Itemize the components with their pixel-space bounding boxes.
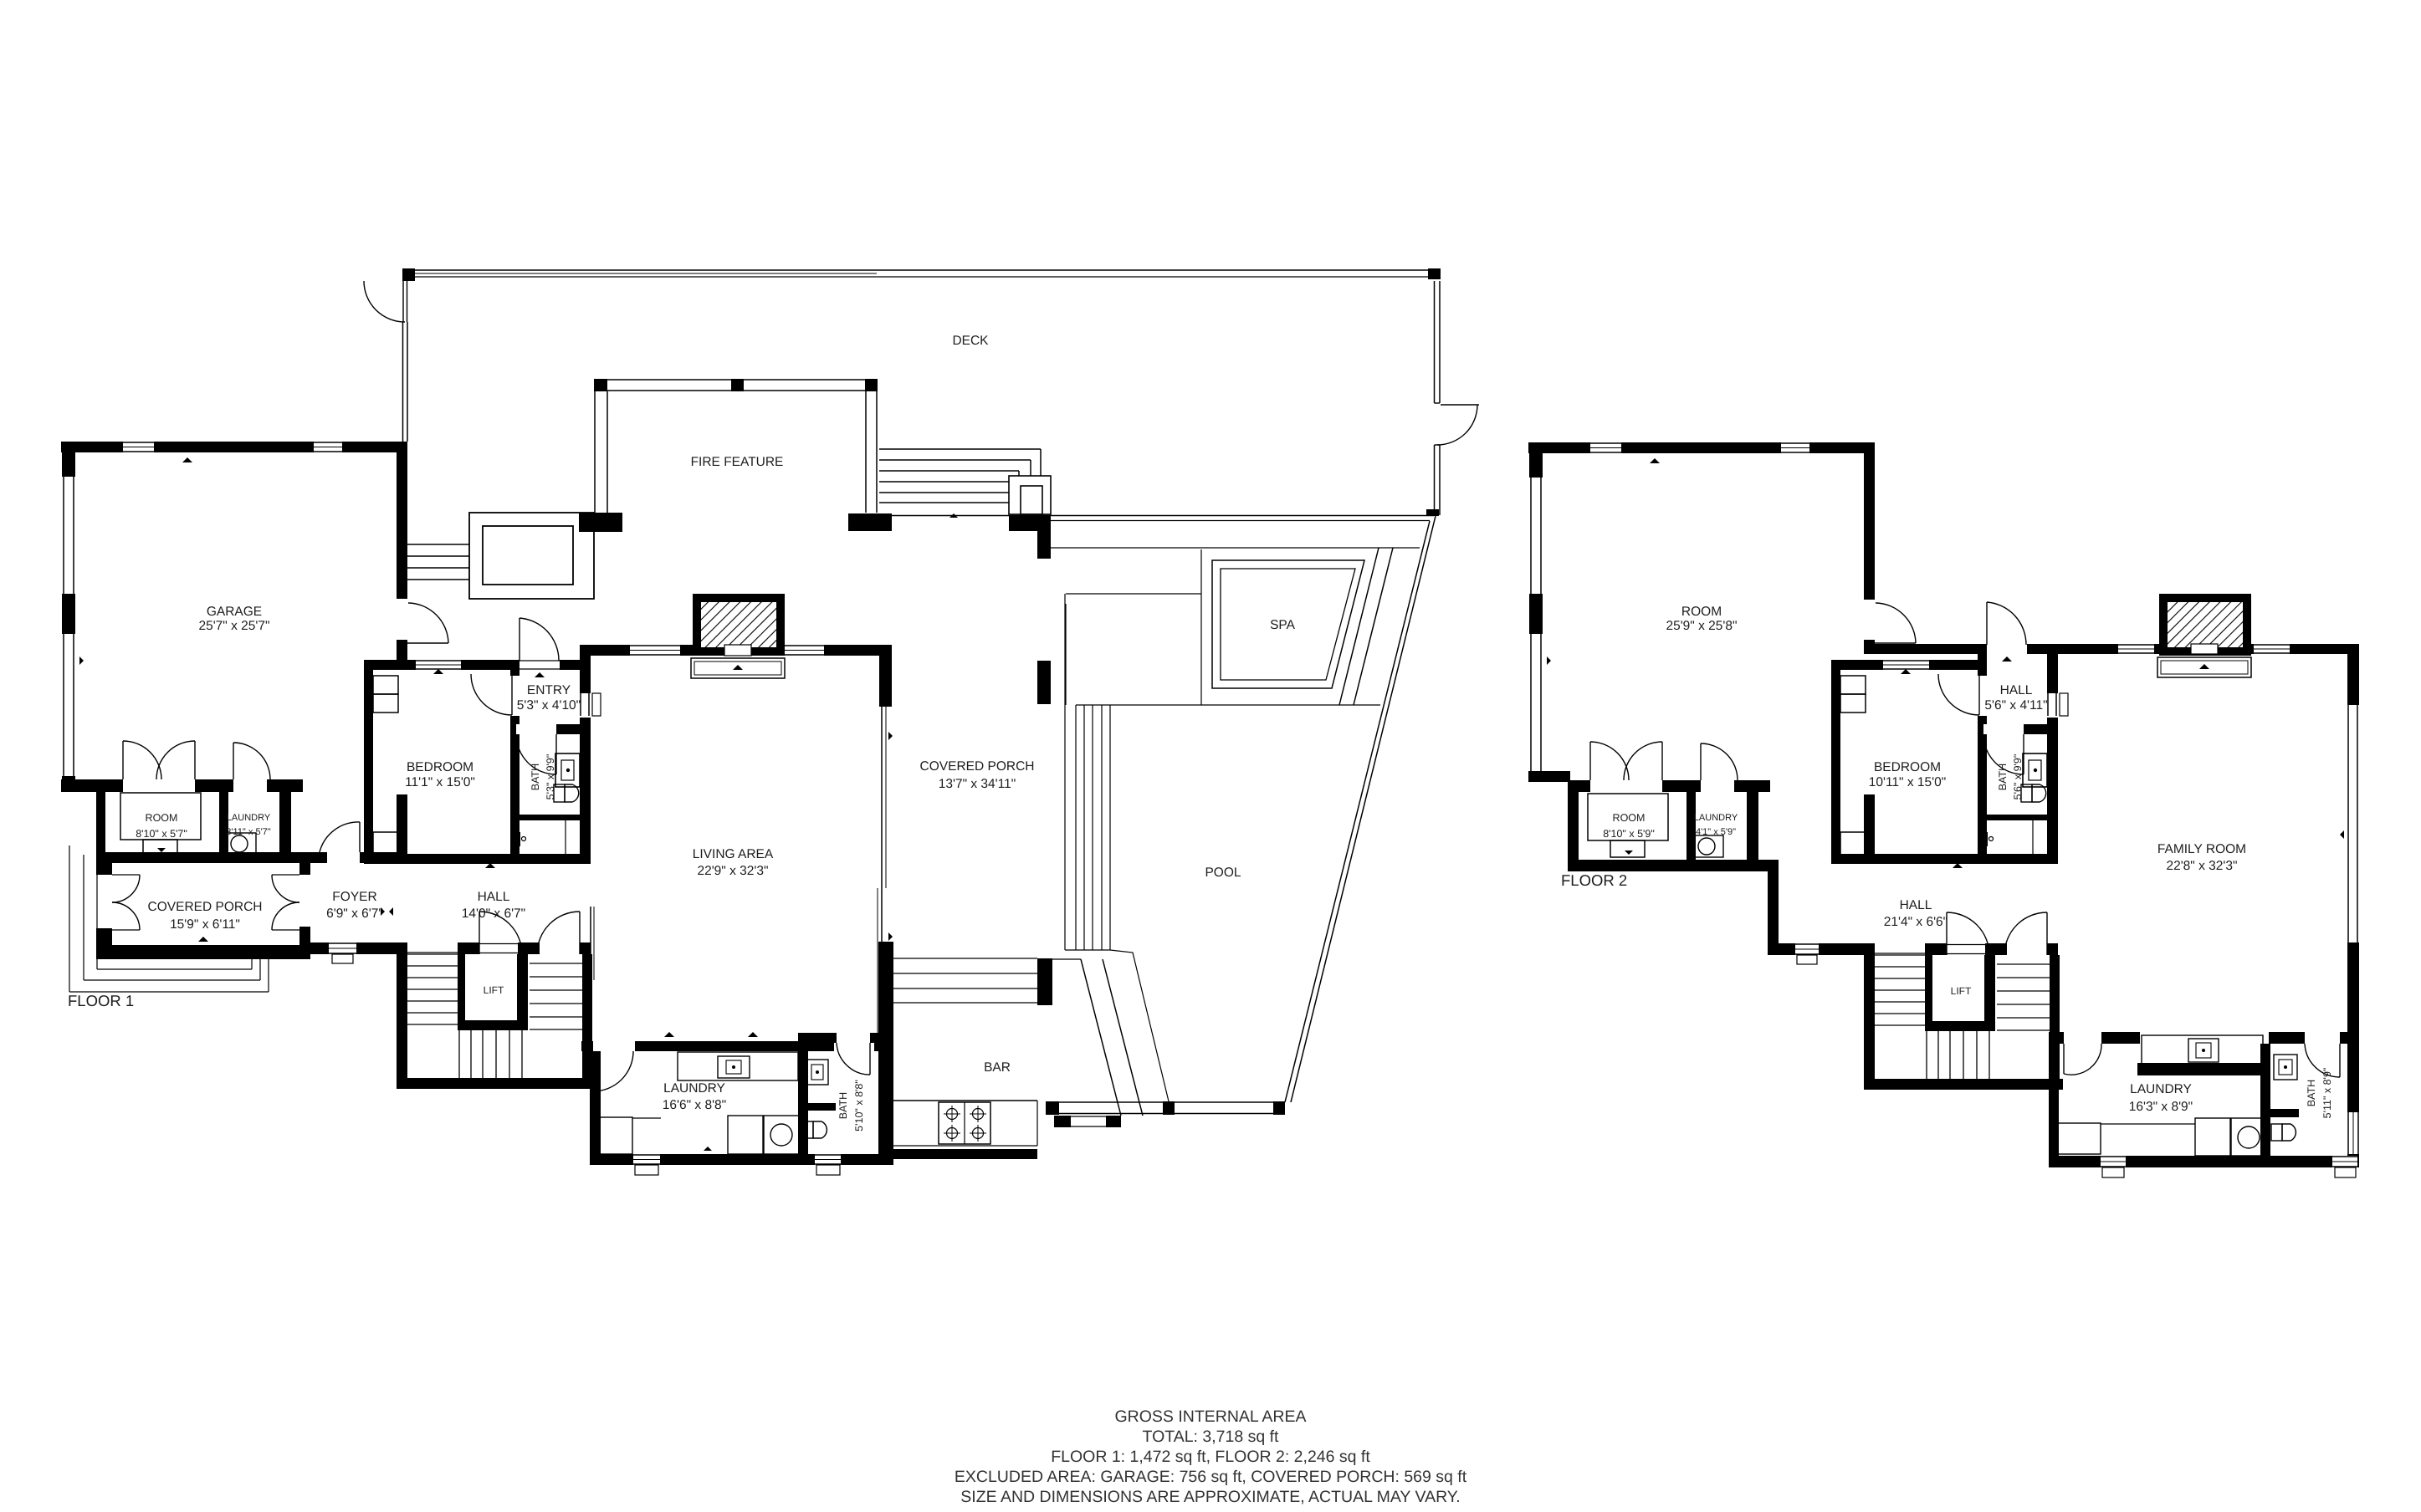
svg-text:DECK: DECK — [952, 334, 989, 348]
svg-text:ENTRY: ENTRY — [527, 683, 571, 697]
svg-text:3'11" x 5'7": 3'11" x 5'7" — [226, 827, 270, 837]
svg-text:BATH: BATH — [1997, 764, 2009, 790]
svg-text:16'3" x 8'9": 16'3" x 8'9" — [2129, 1100, 2193, 1114]
svg-text:LAUNDRY: LAUNDRY — [2130, 1082, 2192, 1096]
svg-text:25'7" x 25'7": 25'7" x 25'7" — [198, 619, 269, 633]
svg-text:TOTAL: 3,718 sq ft: TOTAL: 3,718 sq ft — [1143, 1428, 1280, 1446]
svg-text:5'10" x 8'8": 5'10" x 8'8" — [853, 1080, 865, 1131]
svg-text:FLOOR 1: 1,472 sq ft, FLOOR 2:: FLOOR 1: 1,472 sq ft, FLOOR 2: 2,246 sq … — [1051, 1448, 1370, 1466]
svg-text:8'10" x 5'7": 8'10" x 5'7" — [136, 828, 187, 840]
svg-text:HALL: HALL — [1900, 898, 1932, 912]
svg-text:LAUNDRY: LAUNDRY — [663, 1081, 725, 1096]
svg-text:4'1" x 5'9": 4'1" x 5'9" — [1696, 827, 1736, 837]
svg-text:LAUNDRY: LAUNDRY — [227, 813, 271, 823]
svg-text:POOL: POOL — [1205, 866, 1241, 880]
svg-text:FAMILY ROOM: FAMILY ROOM — [2157, 842, 2246, 856]
svg-text:LIFT: LIFT — [484, 984, 504, 996]
svg-text:FIRE FEATURE: FIRE FEATURE — [691, 455, 784, 469]
svg-text:ROOM: ROOM — [1681, 605, 1722, 619]
svg-text:FLOOR 2: FLOOR 2 — [1561, 871, 1627, 889]
svg-text:BEDROOM: BEDROOM — [407, 760, 473, 774]
svg-text:HALL: HALL — [2000, 683, 2033, 697]
svg-text:ROOM: ROOM — [1613, 812, 1646, 824]
svg-text:22'8" x 32'3": 22'8" x 32'3" — [2166, 859, 2237, 873]
svg-text:5'11" x 8'9": 5'11" x 8'9" — [2321, 1068, 2333, 1119]
svg-text:13'7" x 34'11": 13'7" x 34'11" — [939, 777, 1016, 791]
svg-text:BATH: BATH — [837, 1092, 849, 1119]
svg-text:HALL: HALL — [478, 890, 510, 904]
svg-text:6'9" x 6'7": 6'9" x 6'7" — [326, 907, 383, 921]
svg-text:COVERED PORCH: COVERED PORCH — [920, 759, 1035, 774]
svg-text:8'10" x 5'9": 8'10" x 5'9" — [1603, 828, 1655, 840]
svg-text:SPA: SPA — [1270, 618, 1296, 632]
svg-text:BATH: BATH — [2306, 1080, 2317, 1106]
svg-text:GROSS INTERNAL AREA: GROSS INTERNAL AREA — [1114, 1407, 1306, 1426]
svg-text:BATH: BATH — [530, 764, 541, 790]
svg-text:EXCLUDED AREA: GARAGE: 756 sq: EXCLUDED AREA: GARAGE: 756 sq ft, COVERE… — [955, 1468, 1467, 1486]
svg-text:5'3" x 9'9": 5'3" x 9'9" — [545, 754, 556, 800]
svg-text:LAUNDRY: LAUNDRY — [1694, 813, 1738, 823]
svg-text:GARAGE: GARAGE — [207, 605, 262, 619]
svg-text:15'9" x 6'11": 15'9" x 6'11" — [170, 917, 240, 932]
svg-text:BEDROOM: BEDROOM — [1874, 760, 1941, 774]
svg-text:10'11" x 15'0": 10'11" x 15'0" — [1869, 775, 1946, 789]
svg-text:FLOOR 1: FLOOR 1 — [68, 992, 134, 1009]
svg-text:11'1" x 15'0": 11'1" x 15'0" — [405, 775, 475, 789]
svg-text:5'3" x 4'10": 5'3" x 4'10" — [517, 698, 581, 713]
svg-text:ROOM: ROOM — [146, 812, 178, 824]
svg-text:LIVING AREA: LIVING AREA — [693, 847, 774, 861]
svg-text:5'6" x 9'9": 5'6" x 9'9" — [2012, 754, 2024, 800]
svg-text:16'6" x 8'8": 16'6" x 8'8" — [663, 1098, 726, 1112]
svg-text:SIZE AND DIMENSIONS ARE APPROX: SIZE AND DIMENSIONS ARE APPROXIMATE, ACT… — [960, 1488, 1460, 1506]
svg-text:BAR: BAR — [984, 1060, 1011, 1075]
svg-text:21'4" x 6'6": 21'4" x 6'6" — [1884, 915, 1948, 929]
svg-text:25'9" x 25'8": 25'9" x 25'8" — [1666, 619, 1737, 633]
svg-text:5'6" x 4'11": 5'6" x 4'11" — [1984, 698, 2047, 713]
svg-text:22'9" x 32'3": 22'9" x 32'3" — [697, 864, 768, 878]
svg-text:LIFT: LIFT — [1951, 985, 1972, 997]
svg-text:FOYER: FOYER — [332, 890, 376, 904]
svg-text:COVERED PORCH: COVERED PORCH — [148, 900, 263, 914]
